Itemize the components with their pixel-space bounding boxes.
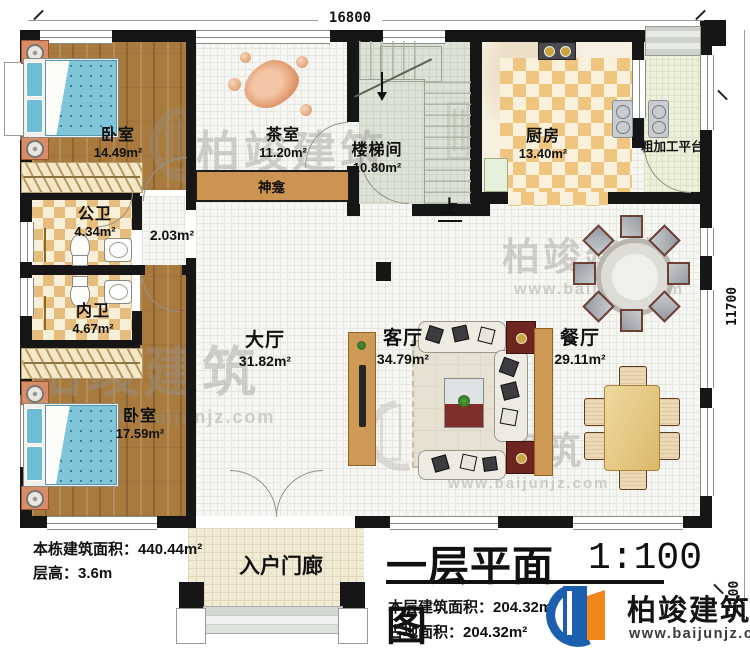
window [196,30,330,44]
window [573,516,683,530]
wall-kitchen-platform [632,41,644,60]
dining-table [604,385,660,471]
dim-width-total: 16800 [318,10,382,26]
stair-arrow-stem [381,72,383,92]
nightstand [21,381,49,405]
label-shrine: 神龛 [196,176,347,196]
glass-door [632,60,646,118]
wall-kitchen-hall [482,192,508,204]
label-tea-room: 茶室11.20m² [233,126,333,161]
dim-height-total: 11700 [725,262,740,326]
brand-name: 柏竣建筑 [627,587,750,629]
wall-kitchen-hall [608,192,700,204]
corner-pier [700,20,726,46]
window [390,516,498,530]
porch-steps [203,606,343,634]
coffee-table [444,378,484,428]
stairs-up-label: 上 [438,193,462,222]
column [376,262,391,281]
stair-flight-upper [359,41,425,80]
note-building-area: 本栋建筑面积：440.44m² [33,538,202,559]
entry-opening [196,516,355,528]
nightstand [21,486,49,510]
brand-website: www.baijunjz.com [629,626,750,642]
window [20,222,34,262]
dim-tick [695,10,706,21]
sofa-right [494,350,528,442]
sofa-bottom [418,450,506,480]
pillow [26,446,43,481]
dim-tick [717,90,728,101]
window [700,290,714,388]
label-platform: 粗加工平台 [641,136,713,155]
window [700,55,714,130]
plant [458,395,470,407]
tv [359,365,366,427]
chair [667,262,690,285]
floor-plan: 柏竣建筑 柏竣建筑www.baijunjz.com 柏竣建筑www.baijun… [0,0,750,648]
corner-cabinet [506,441,536,474]
fridge [484,158,508,192]
label-dining-room: 餐厅29.11m² [530,328,630,368]
porch-pillar [340,582,365,608]
window [40,30,112,44]
stair-flight-main [424,80,471,204]
pillow [26,408,43,444]
wall-bedroom2-hall [186,258,196,516]
drawing-scale: 1:100 [588,537,702,580]
label-public-bath: 公卫4.34m² [45,205,145,240]
chair [573,262,596,285]
toilet-tank [72,255,88,266]
pillow [26,99,43,133]
sink [104,280,132,304]
chair [620,215,643,238]
chair [584,398,606,426]
wall-stair-kitchen [470,41,482,204]
label-hall: 大厅31.82m² [215,330,315,370]
chair [619,468,647,490]
wall-tea-stair [347,41,359,122]
toilet-tank [72,276,88,287]
brand-logo-icon [527,582,625,648]
label-living-room: 客厅34.79m² [353,328,453,368]
wardrobe [21,348,143,379]
dim-tick [33,10,44,21]
porch-sidepad [338,608,368,644]
tea-stool [296,56,308,68]
chair [584,432,606,460]
kitchen-sink [612,100,633,138]
window [700,408,714,496]
wall-corridor-hall [186,196,196,210]
note-floor-height: 层高：3.6m [33,562,112,583]
porch-pillar [179,582,204,608]
nightstand [21,136,49,160]
stair-arrow-icon [377,92,387,101]
tea-stool [240,52,251,63]
tea-stool [300,104,312,116]
wardrobe [21,162,143,193]
bed-mattress [45,60,117,136]
stove [538,42,576,60]
label-private-bath: 内卫4.67m² [43,302,143,337]
pillow [26,62,43,97]
window [47,516,157,530]
note-footprint-area: 占地面积：204.32m² [388,621,527,642]
platform-sink [648,100,669,138]
wall-bedroom1-tea [186,41,196,196]
tea-stool [228,78,241,91]
wall-stair-hall [347,204,360,216]
sink [104,238,132,262]
label-kitchen: 厨房13.40m² [493,127,593,162]
label-bedroom1: 卧室14.49m² [68,126,168,161]
wall-bath-divider [32,265,145,275]
porch-sidepad [176,608,206,644]
chair [658,432,680,460]
chair [658,398,680,426]
label-porch: 入户门廊 [216,550,346,580]
exterior-pad [645,26,701,56]
dim-line-right [744,30,745,528]
label-bedroom2: 卧室17.59m² [90,407,190,442]
label-stairwell: 楼梯间10.80m² [327,141,427,176]
window [20,278,34,316]
window [700,228,714,256]
kitchen-doorway-floor [508,192,608,206]
